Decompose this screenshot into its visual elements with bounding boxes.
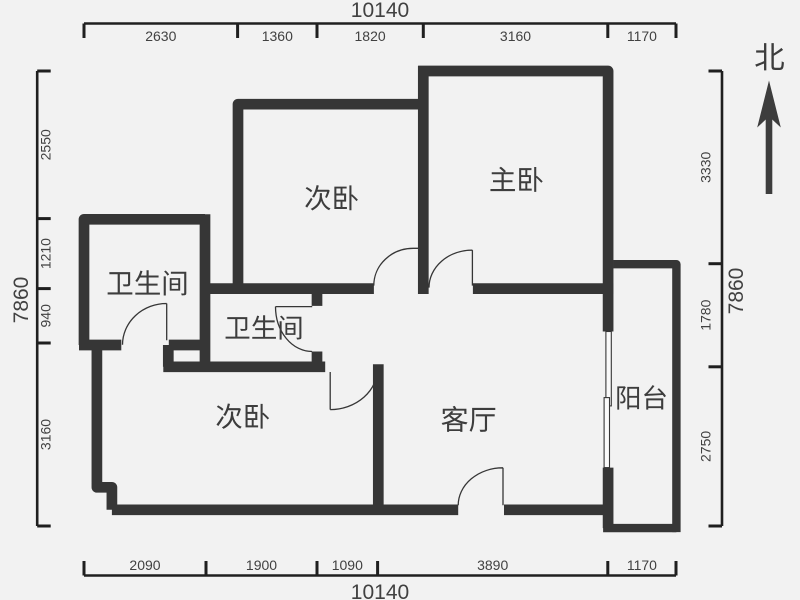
svg-text:2750: 2750 xyxy=(698,431,714,462)
svg-text:940: 940 xyxy=(38,304,54,328)
svg-text:1820: 1820 xyxy=(355,28,386,44)
svg-text:1360: 1360 xyxy=(262,28,293,44)
svg-text:2630: 2630 xyxy=(145,28,176,44)
svg-text:10140: 10140 xyxy=(351,581,409,600)
svg-text:1900: 1900 xyxy=(246,557,277,573)
svg-text:3160: 3160 xyxy=(38,419,54,450)
svg-text:3890: 3890 xyxy=(477,557,508,573)
svg-text:10140: 10140 xyxy=(351,0,409,22)
svg-text:3330: 3330 xyxy=(698,152,714,183)
svg-text:3160: 3160 xyxy=(500,28,531,44)
svg-text:1090: 1090 xyxy=(332,557,363,573)
svg-text:1170: 1170 xyxy=(627,557,657,573)
svg-text:7860: 7860 xyxy=(10,277,33,324)
svg-text:1210: 1210 xyxy=(38,238,54,269)
svg-text:2550: 2550 xyxy=(38,129,54,160)
svg-text:7860: 7860 xyxy=(725,268,748,315)
svg-text:1170: 1170 xyxy=(627,28,657,44)
svg-text:1780: 1780 xyxy=(698,299,714,330)
svg-text:2090: 2090 xyxy=(129,557,160,573)
